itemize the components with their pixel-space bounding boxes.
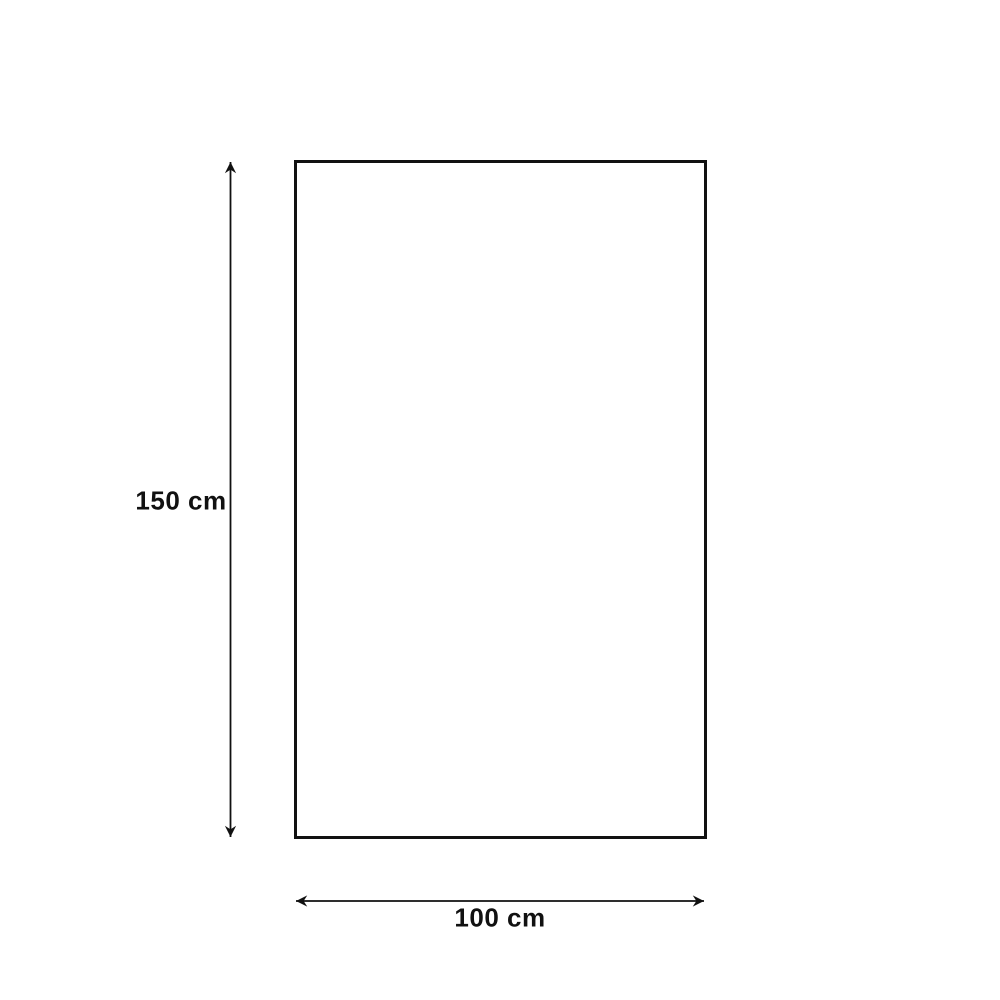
rectangle-outline xyxy=(296,162,706,838)
dimension-diagram: 150 cm 100 cm xyxy=(0,0,1000,1000)
height-dimension-label: 150 cm xyxy=(135,486,226,517)
width-dimension-label: 100 cm xyxy=(454,903,545,934)
